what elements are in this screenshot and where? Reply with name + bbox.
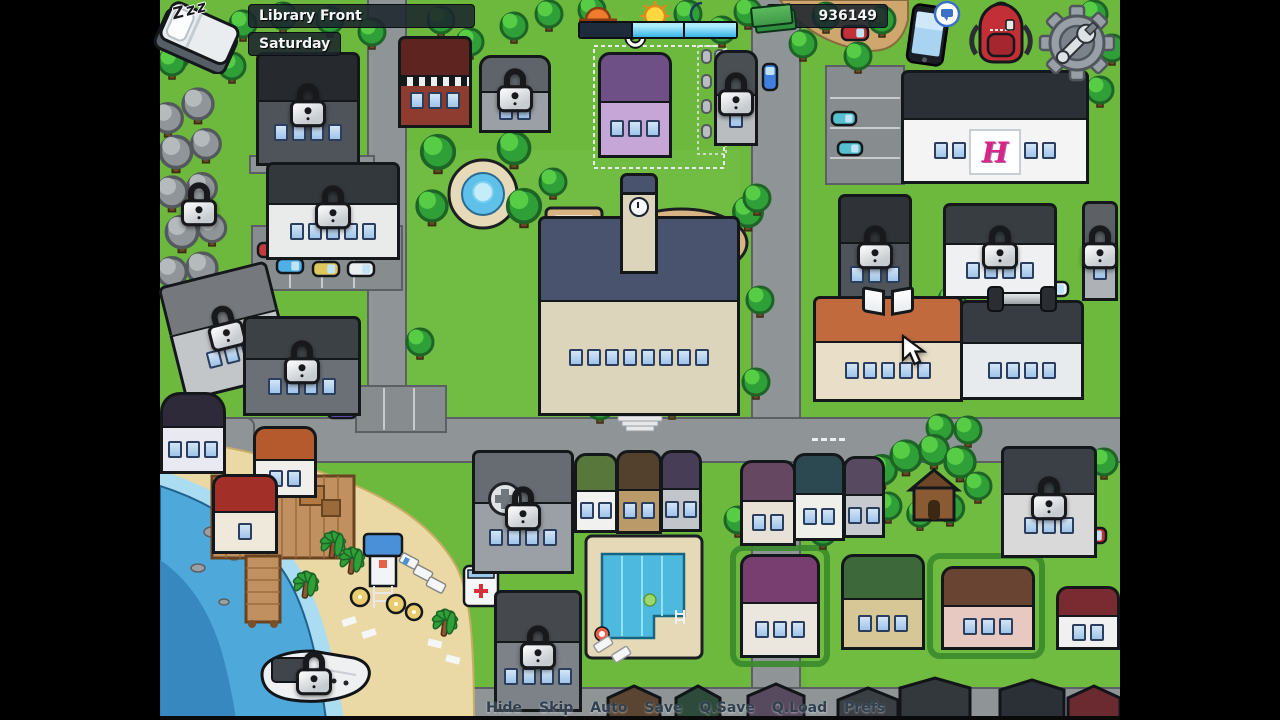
- time-segment-evening: [685, 23, 736, 37]
- location-pool[interactable]: [586, 536, 702, 658]
- lock-icon: [1031, 476, 1067, 522]
- location-house-10[interactable]: [1056, 586, 1120, 650]
- location-house-8[interactable]: [841, 554, 925, 650]
- location-mansion[interactable]: ↻: [598, 52, 672, 158]
- clock-icon: [629, 197, 649, 217]
- location-diner[interactable]: [398, 36, 472, 128]
- map-locations-layer: ↻H: [0, 0, 1280, 720]
- quickmenu-prefs[interactable]: Prefs: [844, 700, 885, 716]
- location-hospital[interactable]: H: [901, 70, 1089, 184]
- lock-icon: [857, 225, 893, 271]
- day-of-week-label: Saturday: [248, 32, 341, 56]
- lock-icon: [315, 185, 351, 231]
- location-round-building[interactable]: [160, 392, 226, 474]
- location-library[interactable]: [813, 296, 963, 402]
- money-value: 936149: [819, 8, 877, 24]
- quickmenu-q-load[interactable]: Q.Load: [772, 700, 827, 716]
- inventory-button[interactable]: [966, 0, 1036, 70]
- location-clinic[interactable]: [472, 450, 574, 574]
- location-house-4[interactable]: [740, 460, 796, 546]
- phone-button[interactable]: [898, 0, 964, 74]
- quickmenu-skip[interactable]: Skip: [539, 700, 573, 716]
- quickmenu-hide[interactable]: Hide: [486, 700, 522, 716]
- game-screen: ↻H Zzz Library Front Saturday: [0, 0, 1280, 720]
- mouse-cursor: [901, 334, 927, 368]
- settings-gear-icon: [1040, 6, 1114, 80]
- location-house-3[interactable]: [660, 450, 702, 532]
- lock-icon: [505, 486, 541, 532]
- quick-menu: HideSkipAutoSaveQ.SaveQ.LoadPrefs: [486, 700, 885, 716]
- location-house-6[interactable]: [843, 456, 885, 538]
- location-house-2[interactable]: [616, 450, 662, 534]
- location-car-dealership[interactable]: [266, 162, 400, 260]
- location-beach[interactable]: [260, 520, 450, 650]
- time-segment-morning: [580, 23, 631, 37]
- lock-icon: [296, 651, 332, 697]
- lock-icon: [718, 72, 754, 118]
- location-house-7[interactable]: [740, 554, 820, 658]
- location-workshop[interactable]: [243, 316, 361, 416]
- sunrise-icon: [579, 8, 617, 20]
- quickmenu-save[interactable]: Save: [644, 700, 682, 716]
- location-gray-house[interactable]: [479, 55, 551, 133]
- backpack-icon: [972, 4, 1031, 63]
- money-counter: 936149: [766, 4, 888, 28]
- hospital-sign-icon: H: [969, 129, 1021, 175]
- location-warehouse[interactable]: [256, 52, 360, 166]
- location-bell-tower[interactable]: [1082, 201, 1118, 301]
- location-gym[interactable]: [960, 300, 1084, 400]
- lock-icon: [1082, 225, 1118, 271]
- location-church[interactable]: [714, 50, 758, 146]
- location-house-1[interactable]: [574, 453, 618, 533]
- location-mansion-se[interactable]: [1001, 446, 1097, 558]
- location-boat[interactable]: [256, 646, 372, 708]
- lock-icon: [290, 83, 326, 129]
- current-location-label: Library Front: [248, 4, 475, 28]
- lock-icon: [520, 625, 556, 671]
- quickmenu-auto[interactable]: Auto: [590, 700, 627, 716]
- dumbbell-icon: [989, 292, 1055, 306]
- book-icon: [861, 286, 915, 318]
- location-house-9[interactable]: [941, 566, 1035, 650]
- time-segment-afternoon: [633, 23, 684, 37]
- lock-icon: [284, 340, 320, 386]
- lock-icon: [181, 182, 217, 228]
- settings-button[interactable]: [1038, 4, 1116, 86]
- time-progress-bar: [578, 21, 738, 39]
- location-treehouse[interactable]: [894, 460, 966, 542]
- cash-icon: [750, 1, 797, 33]
- location-boathouse[interactable]: [212, 474, 278, 554]
- location-apartment-south[interactable]: [494, 590, 582, 712]
- lock-icon: [497, 68, 533, 114]
- lock-icon: [982, 225, 1018, 271]
- quickmenu-q-save[interactable]: Q.Save: [700, 700, 755, 716]
- location-park-fountain[interactable]: [426, 140, 540, 232]
- location-police-station[interactable]: [943, 203, 1057, 299]
- location-house-5[interactable]: [793, 453, 845, 541]
- location-school[interactable]: [538, 216, 740, 416]
